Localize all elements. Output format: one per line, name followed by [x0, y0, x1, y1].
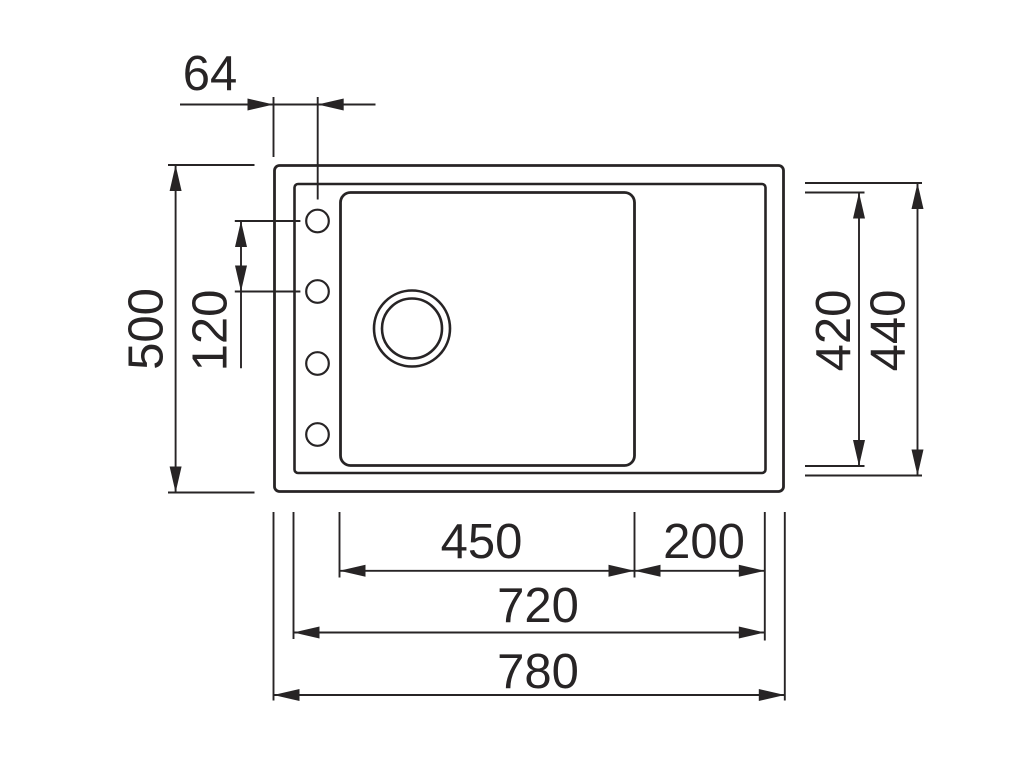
svg-text:200: 200 — [663, 515, 745, 569]
svg-text:420: 420 — [807, 290, 861, 372]
svg-text:64: 64 — [183, 47, 238, 101]
svg-text:120: 120 — [184, 290, 238, 372]
svg-text:450: 450 — [441, 515, 523, 569]
svg-text:720: 720 — [497, 579, 579, 633]
svg-text:440: 440 — [862, 290, 916, 372]
svg-text:500: 500 — [120, 288, 174, 370]
svg-text:780: 780 — [497, 645, 579, 699]
